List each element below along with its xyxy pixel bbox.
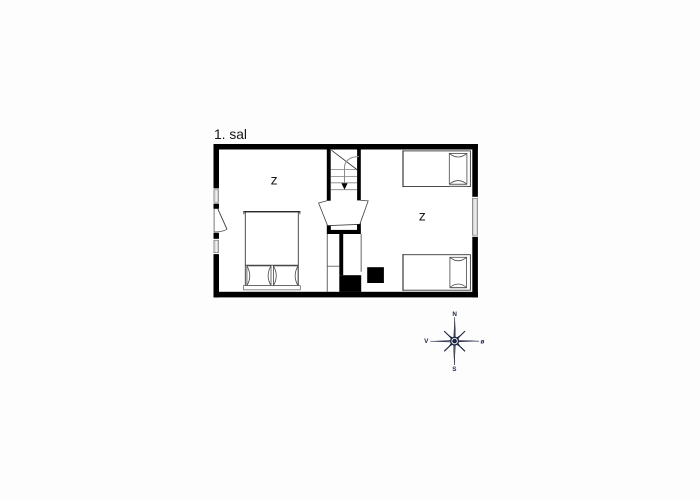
svg-text:z: z [271, 171, 278, 187]
svg-text:N: N [452, 311, 457, 318]
svg-text:z: z [419, 207, 426, 223]
svg-text:S: S [452, 366, 456, 373]
svg-text:ø: ø [480, 338, 484, 345]
svg-text:1. sal: 1. sal [214, 127, 247, 142]
